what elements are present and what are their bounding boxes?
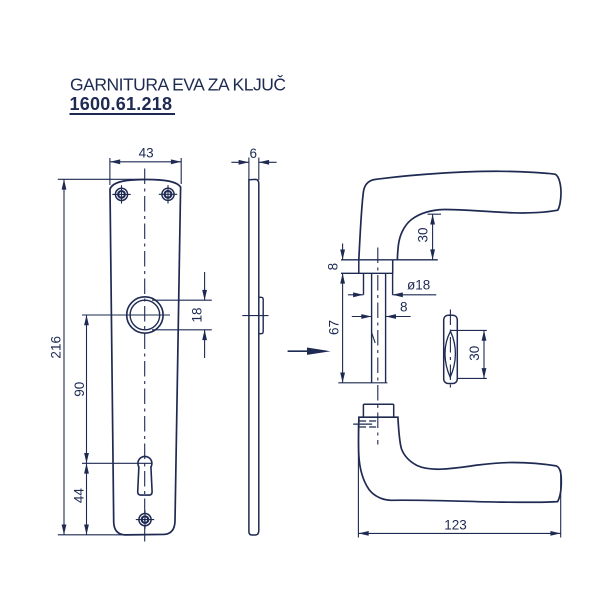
svg-text:44: 44	[72, 488, 87, 504]
svg-text:ø18: ø18	[407, 278, 430, 293]
svg-text:30: 30	[416, 227, 431, 242]
svg-text:8: 8	[400, 300, 408, 315]
svg-text:67: 67	[326, 320, 341, 335]
svg-text:8: 8	[325, 263, 340, 271]
svg-text:216: 216	[49, 336, 64, 359]
svg-text:30: 30	[467, 346, 482, 361]
svg-text:18: 18	[190, 307, 205, 322]
svg-text:6: 6	[250, 146, 258, 161]
svg-text:1600.61.218: 1600.61.218	[70, 94, 173, 114]
svg-text:43: 43	[139, 145, 154, 160]
svg-text:GARNITURA EVA ZA KLJUČ: GARNITURA EVA ZA KLJUČ	[70, 74, 286, 95]
svg-text:90: 90	[72, 382, 87, 397]
svg-text:123: 123	[444, 517, 467, 532]
